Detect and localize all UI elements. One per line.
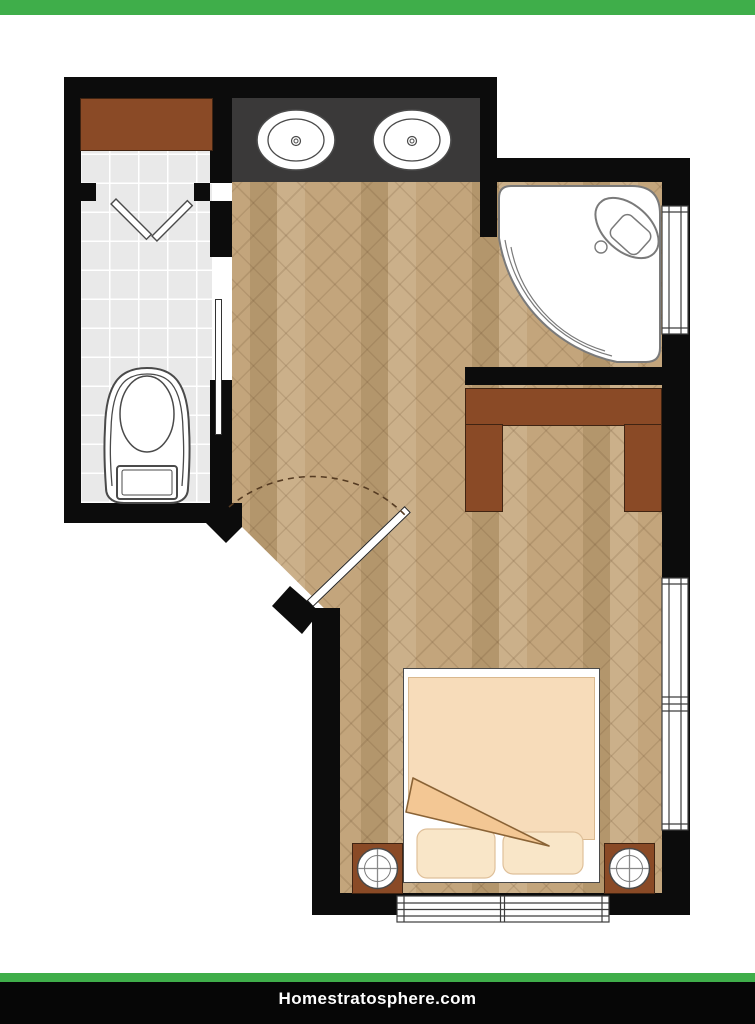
- footer-bar: Homestratosphere.com: [0, 982, 755, 1024]
- closet-shelf: [80, 98, 213, 151]
- desk-leg-right: [624, 424, 662, 512]
- desk-top: [465, 388, 662, 426]
- wall-right: [662, 158, 690, 915]
- floor-plan: [0, 0, 755, 973]
- wall-shower-top: [490, 158, 690, 182]
- door-jamb-right: [194, 183, 210, 201]
- wall-toilet-room-right-upper: [210, 98, 232, 183]
- wall-bottom: [312, 893, 690, 915]
- page: Homestratosphere.com: [0, 0, 755, 1024]
- wall-shower-bottom: [465, 367, 690, 385]
- nightstand-left: [352, 843, 403, 894]
- wall-vanity-right: [480, 77, 497, 237]
- wall-left: [64, 77, 81, 523]
- wall-toilet-room-right-mid: [210, 201, 232, 257]
- nightstand-right: [604, 843, 655, 894]
- desk-leg-left: [465, 424, 503, 512]
- wall-bedroom-left: [312, 608, 340, 915]
- toilet-room-tile-floor: [80, 98, 212, 503]
- site-label: Homestratosphere.com: [279, 989, 477, 1009]
- door-jamb-left: [80, 183, 96, 201]
- vanity-counter: [232, 98, 480, 182]
- wall-toilet-room-bottom: [64, 503, 242, 523]
- bed-comforter: [408, 677, 595, 840]
- wall-top: [64, 77, 497, 98]
- pocket-door-panel: [215, 299, 222, 435]
- bottom-green-stripe: [0, 973, 755, 982]
